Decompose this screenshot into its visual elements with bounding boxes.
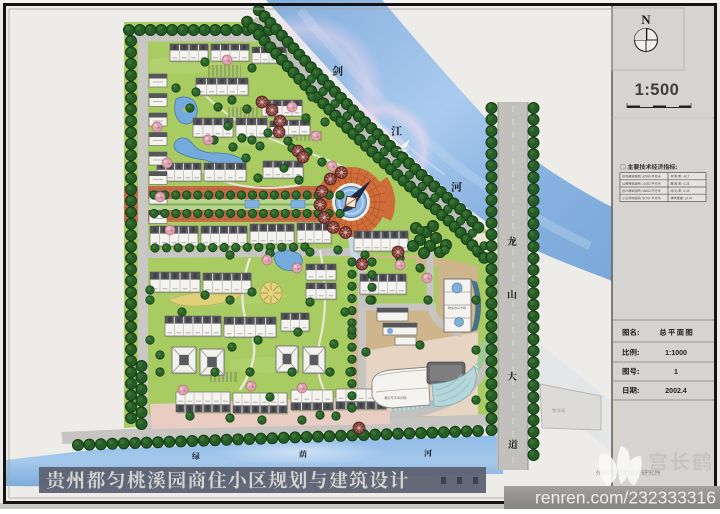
svg-text:1: 1	[674, 369, 678, 376]
svg-text:renren.com/232333316: renren.com/232333316	[535, 488, 716, 508]
svg-text:1:1000: 1:1000	[665, 350, 687, 357]
svg-text:1:500: 1:500	[635, 81, 680, 99]
svg-text:2002.4: 2002.4	[665, 388, 687, 395]
svg-text:N: N	[641, 12, 651, 27]
